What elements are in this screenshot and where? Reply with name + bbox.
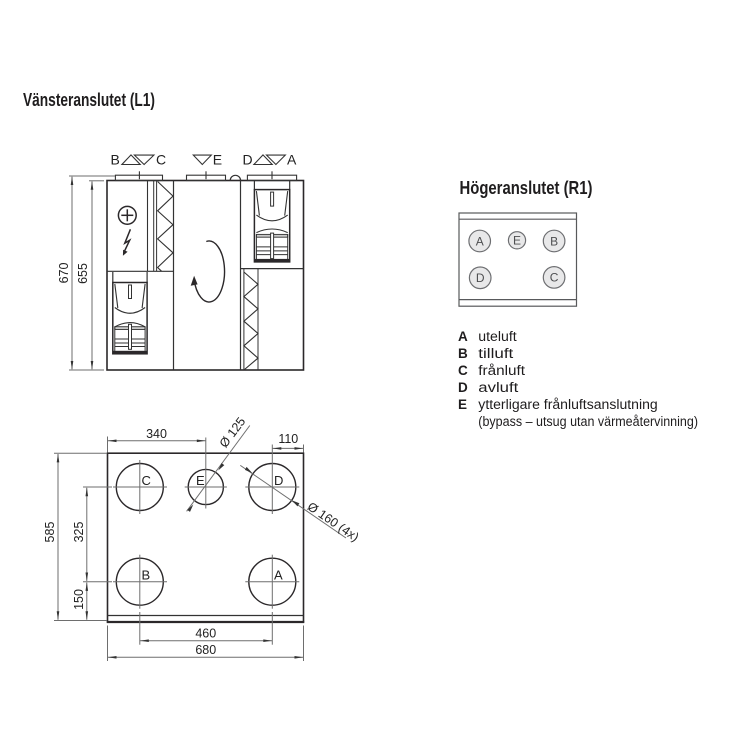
svg-text:C: C (156, 152, 166, 168)
svg-text:680: 680 (195, 643, 216, 657)
svg-text:B: B (142, 568, 151, 583)
svg-text:C: C (458, 363, 468, 378)
svg-text:E: E (213, 152, 222, 168)
svg-text:A: A (476, 234, 484, 248)
svg-text:avluft: avluft (478, 380, 518, 395)
svg-text:E: E (196, 473, 205, 488)
svg-text:B: B (111, 152, 120, 168)
svg-text:frånluft: frånluft (478, 363, 525, 378)
svg-text:Vänsteranslutet (L1): Vänsteranslutet (L1) (23, 90, 155, 110)
svg-text:D: D (458, 380, 468, 395)
svg-text:110: 110 (278, 432, 298, 446)
svg-text:460: 460 (195, 627, 216, 641)
svg-text:Högeranslutet (R1): Högeranslutet (R1) (460, 178, 593, 198)
svg-text:C: C (142, 473, 151, 488)
svg-text:uteluft: uteluft (478, 329, 517, 344)
svg-text:E: E (513, 234, 521, 248)
svg-text:D: D (274, 473, 283, 488)
svg-text:325: 325 (72, 522, 86, 543)
svg-text:340: 340 (146, 427, 167, 441)
svg-text:(bypass – utsug utan värmeåter: (bypass – utsug utan värmeåtervinning) (478, 414, 698, 429)
svg-text:E: E (458, 397, 467, 412)
svg-text:670: 670 (57, 263, 71, 284)
svg-text:ytterligare frånluftsanslutnin: ytterligare frånluftsanslutning (478, 397, 657, 412)
svg-text:A: A (274, 568, 283, 583)
svg-text:D: D (243, 152, 253, 168)
svg-text:tilluft: tilluft (478, 346, 513, 361)
svg-text:585: 585 (43, 522, 57, 543)
svg-text:C: C (550, 271, 559, 285)
svg-text:A: A (458, 329, 468, 344)
svg-text:D: D (476, 271, 485, 285)
svg-text:B: B (458, 346, 468, 361)
svg-text:655: 655 (76, 263, 90, 284)
svg-text:150: 150 (72, 589, 86, 610)
svg-text:B: B (550, 234, 558, 248)
svg-text:A: A (287, 152, 297, 168)
